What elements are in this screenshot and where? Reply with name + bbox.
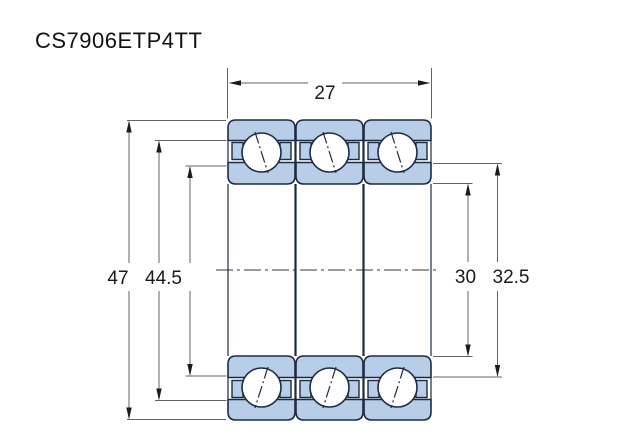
dimension-outer-shoulder: 44.5 bbox=[145, 141, 226, 401]
dim-width-label: 27 bbox=[314, 83, 335, 104]
dimension-total-width: 27 bbox=[228, 68, 432, 119]
dimension-inner-shoulder-left-line bbox=[186, 166, 227, 376]
dim-bore-label: 30 bbox=[455, 267, 476, 288]
dim-inner-shoulder-label: 32.5 bbox=[493, 267, 530, 288]
bearing-drawing-canvas: CS7906ETP4TT bbox=[0, 0, 640, 440]
dimension-bore: 30 bbox=[433, 184, 476, 357]
bearing-diagram: 27 47 44.5 bbox=[0, 0, 640, 440]
dim-outer-shoulder-label: 44.5 bbox=[145, 268, 182, 289]
dimension-inner-shoulder: 32.5 bbox=[433, 164, 529, 378]
dim-outer-diameter-label: 47 bbox=[107, 268, 128, 289]
